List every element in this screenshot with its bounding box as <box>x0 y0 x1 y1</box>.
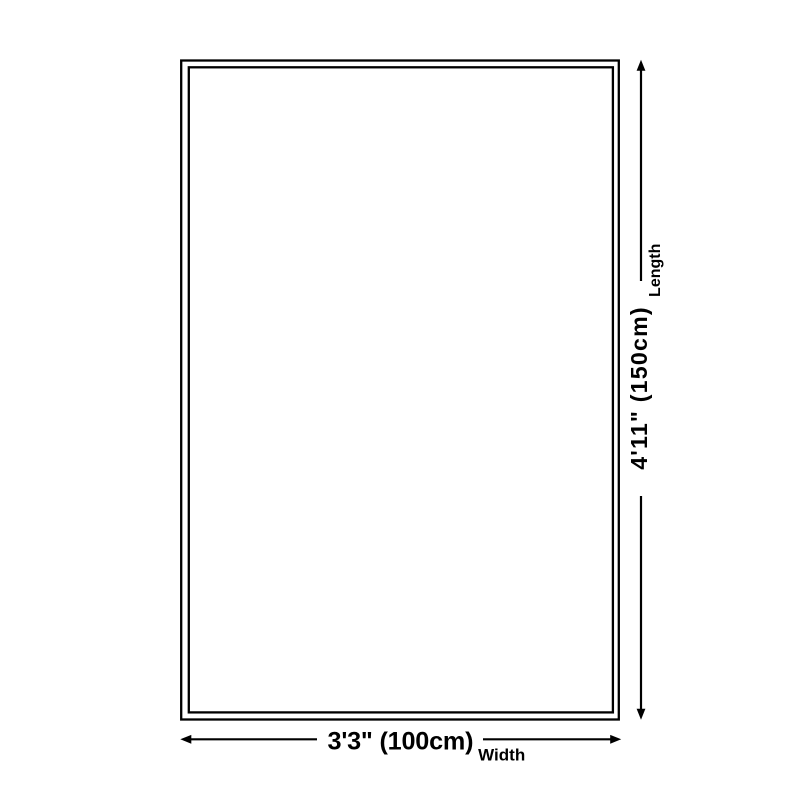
svg-text:Length: Length <box>647 244 664 297</box>
svg-text:Width: Width <box>478 746 525 765</box>
svg-text:4'11" (150cm): 4'11" (150cm) <box>626 306 652 470</box>
svg-text:3'3" (100cm): 3'3" (100cm) <box>328 728 474 756</box>
